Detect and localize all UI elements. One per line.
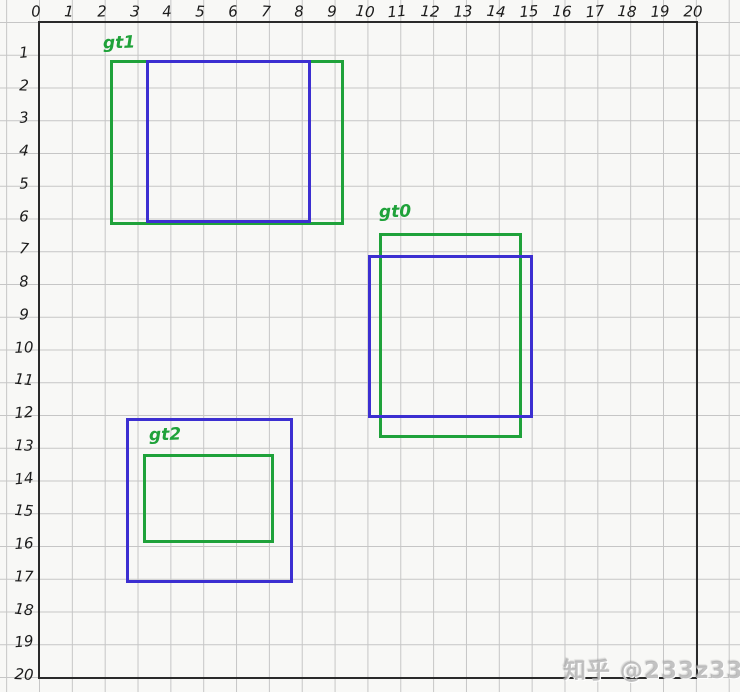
x-tick-6: 6 [228, 4, 239, 20]
x-tick-4: 4 [162, 4, 173, 20]
x-tick-7: 7 [261, 4, 272, 20]
y-tick-9: 9 [19, 307, 29, 322]
x-tick-5: 5 [195, 4, 205, 19]
gt0-label: gt0 [379, 203, 412, 221]
x-tick-13: 13 [453, 4, 473, 20]
pred0-blue-box [368, 255, 534, 419]
x-tick-9: 9 [327, 4, 337, 19]
x-tick-17: 17 [584, 4, 605, 21]
y-tick-14: 14 [14, 470, 35, 487]
y-tick-3: 3 [18, 110, 29, 126]
x-tick-8: 8 [294, 4, 304, 19]
watermark: 知乎 @233z33 [563, 651, 740, 685]
gt1-label: gt1 [103, 34, 136, 52]
y-tick-1: 1 [19, 45, 30, 61]
y-tick-7: 7 [18, 241, 29, 257]
graph-paper-canvas: 01234567891011121314151617181920 1234567… [0, 0, 740, 692]
y-tick-17: 17 [14, 569, 33, 584]
x-tick-3: 3 [129, 4, 140, 20]
x-tick-20: 20 [683, 4, 702, 19]
x-tick-1: 1 [64, 4, 74, 19]
gt2-label: gt2 [149, 426, 182, 444]
x-tick-15: 15 [519, 4, 539, 20]
y-tick-15: 15 [14, 503, 34, 519]
y-tick-16: 16 [14, 536, 34, 552]
y-tick-12: 12 [14, 405, 34, 421]
x-tick-19: 19 [650, 4, 670, 20]
y-tick-18: 18 [14, 601, 35, 618]
y-tick-4: 4 [19, 143, 30, 159]
y-tick-10: 10 [14, 340, 34, 356]
pred1-blue-box [146, 60, 312, 224]
x-tick-16: 16 [552, 4, 572, 20]
x-tick-11: 11 [387, 4, 407, 21]
y-tick-2: 2 [19, 78, 29, 93]
y-tick-5: 5 [19, 176, 29, 191]
y-tick-6: 6 [19, 209, 29, 224]
y-tick-20: 20 [14, 667, 34, 683]
x-tick-0: 0 [31, 4, 42, 20]
y-tick-19: 19 [14, 634, 34, 651]
y-tick-8: 8 [19, 274, 30, 290]
x-tick-10: 10 [354, 4, 375, 21]
x-tick-18: 18 [617, 4, 637, 20]
y-tick-11: 11 [14, 372, 34, 389]
x-tick-2: 2 [97, 4, 107, 19]
y-tick-13: 13 [14, 438, 34, 454]
x-tick-12: 12 [420, 4, 440, 20]
x-tick-14: 14 [486, 4, 506, 21]
